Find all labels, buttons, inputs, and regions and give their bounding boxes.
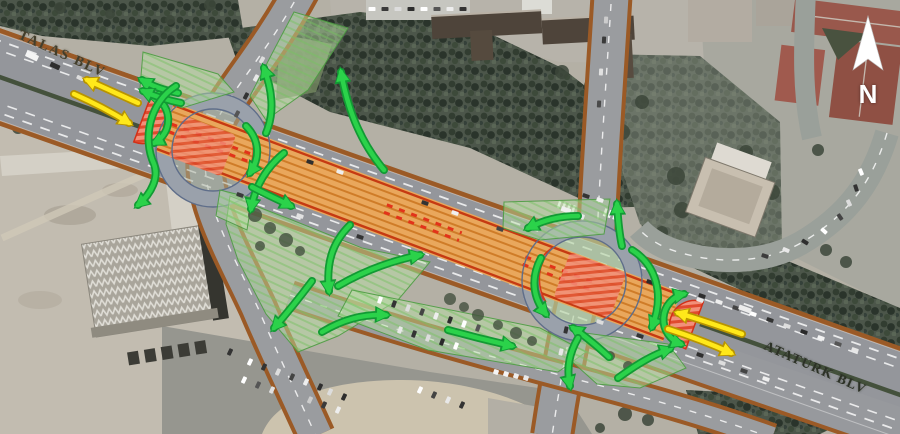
satellite-scene <box>0 0 900 434</box>
vehicle <box>382 7 389 11</box>
traffic-plan-map: TALAS BLV ATATURK BLV N <box>0 0 900 434</box>
vehicle <box>369 7 376 11</box>
vehicle <box>460 7 467 11</box>
north-arrow: N <box>838 14 898 114</box>
north-label: N <box>838 81 898 107</box>
vehicle <box>604 16 608 23</box>
vehicle <box>597 100 601 107</box>
vehicle <box>602 36 606 43</box>
vehicle <box>408 7 415 11</box>
vehicle <box>421 7 428 11</box>
vehicle <box>599 68 603 75</box>
vehicle <box>447 7 454 11</box>
vehicle <box>395 7 402 11</box>
north-arrow-icon <box>847 14 889 74</box>
vehicle <box>434 7 441 11</box>
